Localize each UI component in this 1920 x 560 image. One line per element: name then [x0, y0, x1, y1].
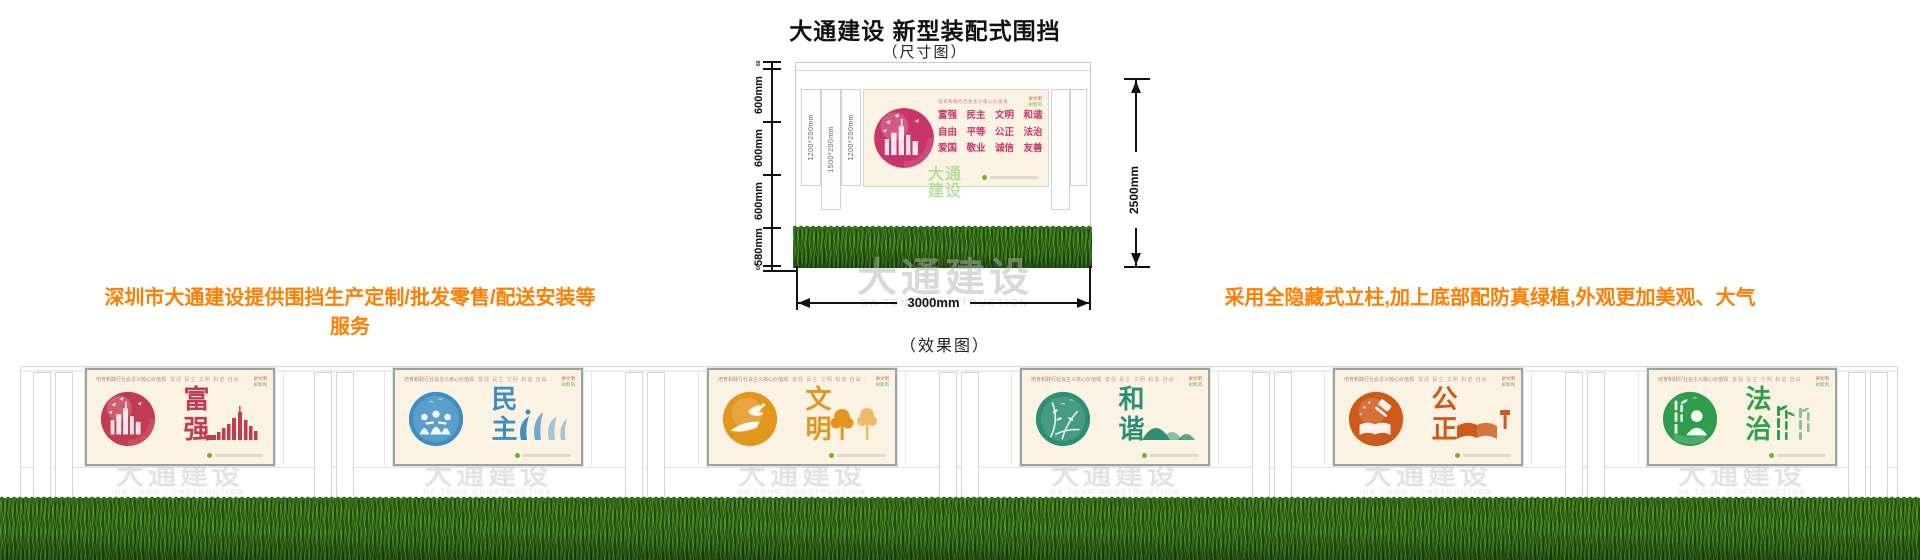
company-mark-text-placeholder: [1777, 454, 1825, 457]
corner-slogan: 讲文明树新风: [562, 376, 576, 389]
people-circle-icon: [407, 390, 465, 448]
fence-post-line: [384, 372, 385, 466]
effect-billboard-hexie: 培育和践行社会主义核心价值观富强 民主 文明 和谐 自由 平等 公正 法治 爱国…: [1020, 368, 1210, 466]
fence-post: [625, 372, 643, 498]
fence-post: [1870, 372, 1888, 498]
fence-post-line: [698, 372, 699, 466]
corner-slogan: 讲文明树新风: [1502, 376, 1516, 389]
fence-post-line: [1531, 372, 1532, 466]
fence-post-line: [591, 372, 592, 466]
values-inline-text: 富强 民主 文明 和谐 自由 平等 公正 法治 爱国 敬业 诚信 友善: [170, 376, 243, 383]
company-mark-text-placeholder: [837, 454, 885, 457]
company-mark-text-placeholder: [215, 454, 263, 457]
fence-post: [939, 372, 957, 498]
fence-post: [1565, 372, 1583, 498]
dim-label: 600mm: [748, 122, 770, 175]
effect-billboard-wenming: 培育和践行社会主义核心价值观富强 民主 文明 和谐 自由 平等 公正 法治 爱国…: [707, 368, 897, 466]
green-dot-icon: [829, 453, 834, 458]
fence-post: [314, 372, 332, 498]
fence-post-line: [905, 372, 906, 466]
company-mark-text-placeholder: [1150, 454, 1198, 457]
dim-label: 600mm: [748, 175, 770, 228]
company-mark: [1455, 453, 1511, 458]
dim-cap: [1124, 266, 1150, 268]
trees-icon: [829, 404, 885, 444]
total-width-label: 3000mm: [897, 295, 970, 310]
fence-post: [961, 372, 979, 498]
dim-label: 60: [748, 262, 770, 273]
fence-post-line: [1011, 372, 1012, 466]
corner-slogan: 讲文明树新风: [876, 376, 890, 389]
green-dot-icon: [207, 453, 212, 458]
fence-post-line: [1324, 372, 1325, 466]
abstract-people-icon: [515, 404, 571, 444]
bamboo-figure-icon: [1661, 390, 1719, 448]
green-dot-icon: [1142, 453, 1147, 458]
dim-label: 580mm: [748, 228, 770, 266]
city-skyline-icon: [99, 390, 157, 448]
green-dot-icon: [1455, 453, 1460, 458]
fence-post: [1252, 372, 1270, 498]
fence-post-line: [283, 372, 284, 466]
width-dimension-line: [970, 302, 1090, 304]
fence-post: [336, 372, 354, 498]
effect-grass-hedge: [0, 498, 1920, 560]
poster: 大通建设 新型装配式围挡 （尺寸图） 深圳市大通建设提供围挡生产定制/批发零售/…: [0, 0, 1920, 560]
effect-billboard-gongzheng: 培育和践行社会主义核心价值观富强 民主 文明 和谐 自由 平等 公正 法治 爱国…: [1333, 368, 1523, 466]
skyline-bars-icon: [207, 404, 263, 444]
billboard-header-row: 培育和践行社会主义核心价值观 富强 民主 文明 和谐 自由 平等 公正 法治 爱…: [96, 376, 243, 383]
book-gavel-icon: [1347, 390, 1405, 448]
total-height-label: 2500mm: [1123, 152, 1145, 228]
fence-post-line: [1638, 372, 1639, 466]
corner-slogan: 讲文明树新风: [1816, 376, 1830, 389]
corner-slogan: 讲文明树新风: [1189, 376, 1203, 389]
corner-slogan: 讲文明树新风: [254, 376, 268, 389]
company-mark: [1769, 453, 1825, 458]
hand-dove-icon: [721, 390, 779, 448]
dim-label: 600mm: [748, 69, 770, 122]
company-mark: [207, 453, 263, 458]
mountains-icon: [1142, 404, 1198, 444]
green-dot-icon: [515, 453, 520, 458]
fence-post: [33, 372, 51, 498]
dim-label: 60: [748, 58, 770, 69]
effect-billboard-fuqiang: 培育和践行社会主义核心价值观 富强 民主 文明 和谐 自由 平等 公正 法治 爱…: [85, 368, 275, 466]
fence-post: [55, 372, 73, 498]
fence-post: [647, 372, 665, 498]
fence-post: [1587, 372, 1605, 498]
left-dimension-line: [771, 61, 773, 272]
fence-post: [1274, 372, 1292, 498]
arrow-left-icon: [798, 298, 810, 308]
dim-cap: [1124, 78, 1150, 80]
fence-post-line: [1218, 372, 1219, 466]
arrow-down-icon: [1131, 253, 1141, 265]
bamboo-icon: [1769, 404, 1825, 444]
branches-birds-icon: [1034, 390, 1092, 448]
company-mark: [1142, 453, 1198, 458]
green-dot-icon: [1769, 453, 1774, 458]
slogan-text: 培育和践行社会主义核心价值观: [96, 376, 166, 383]
effect-billboard-fazhi: 培育和践行社会主义核心价值观富强 民主 文明 和谐 自由 平等 公正 法治 爱国…: [1647, 368, 1837, 466]
fence-post-groups: [0, 0, 1920, 560]
company-mark: [515, 453, 571, 458]
company-mark: [829, 453, 885, 458]
company-mark-text-placeholder: [523, 454, 571, 457]
book-gavel-small-icon: [1455, 404, 1511, 444]
fence-post: [1848, 372, 1866, 498]
effect-billboard-minzhu: 培育和践行社会主义核心价值观富强 民主 文明 和谐 自由 平等 公正 法治 爱国…: [393, 368, 583, 466]
arrow-up-icon: [1131, 81, 1141, 93]
arrow-right-icon: [1077, 298, 1089, 308]
company-mark-text-placeholder: [1463, 454, 1511, 457]
width-dimension-line: [797, 302, 897, 304]
